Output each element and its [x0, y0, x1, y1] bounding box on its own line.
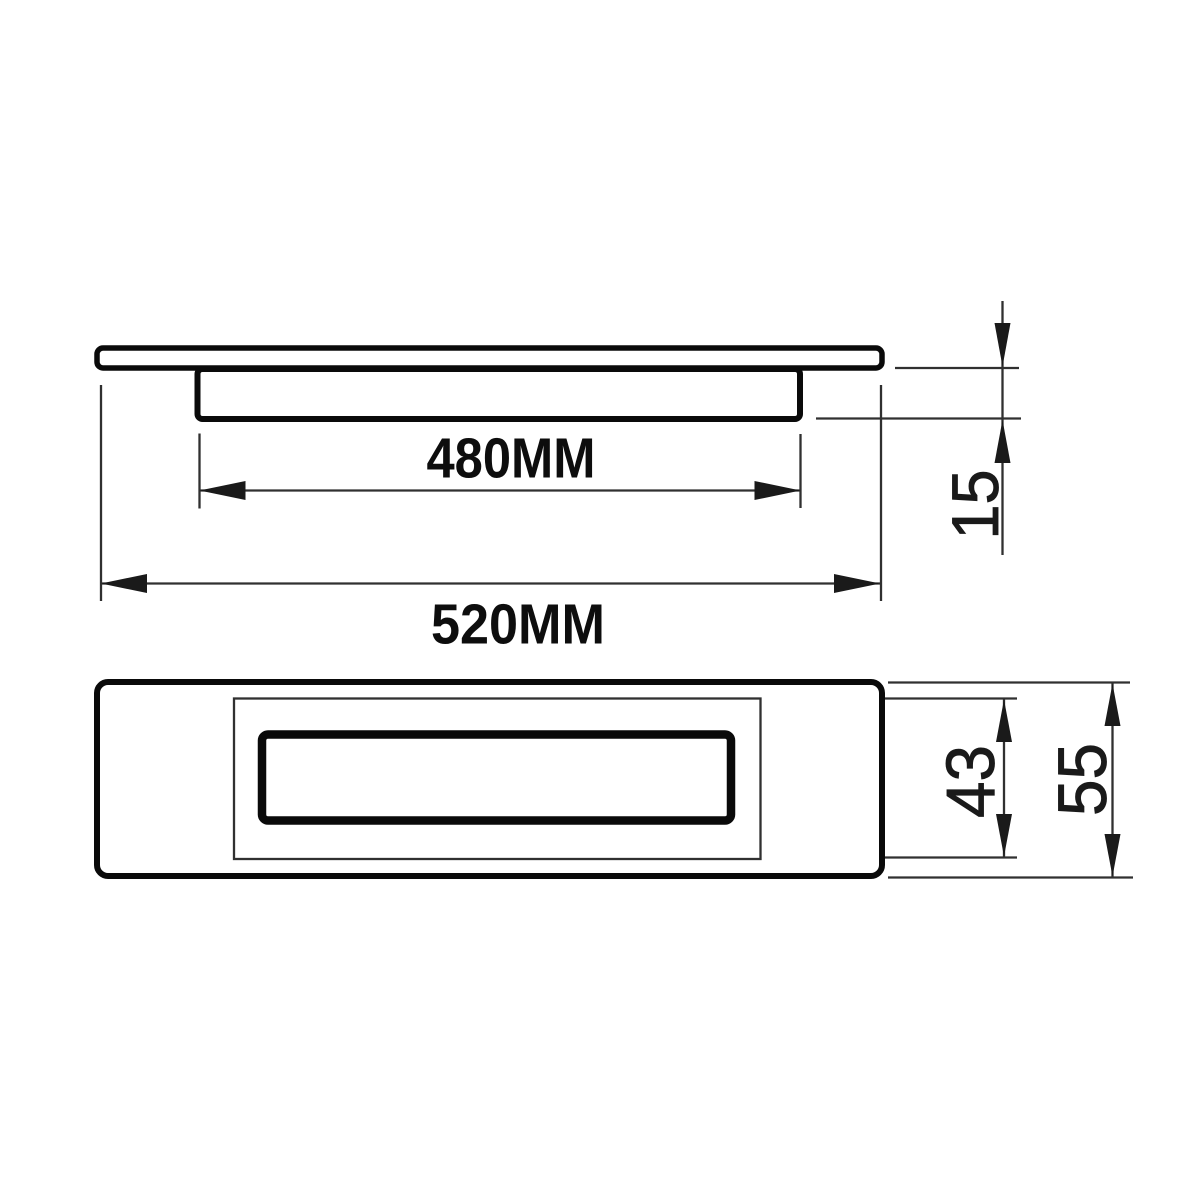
svg-text:520MM: 520MM: [431, 593, 605, 657]
svg-text:480MM: 480MM: [427, 427, 596, 491]
svg-text:55: 55: [1044, 743, 1121, 816]
svg-text:15: 15: [938, 470, 1012, 540]
svg-text:43: 43: [932, 745, 1009, 818]
